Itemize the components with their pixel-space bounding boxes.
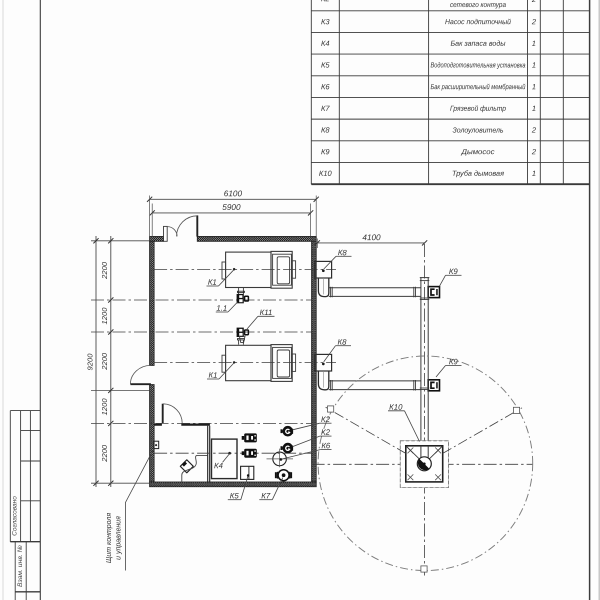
svg-text:сетевого контура: сетевого контура [450,0,506,9]
svg-text:К3: К3 [321,17,330,26]
svg-text:К9: К9 [321,147,330,156]
svg-text:1200: 1200 [100,307,109,325]
svg-text:К5: К5 [230,491,240,500]
svg-text:К6: К6 [321,82,330,91]
svg-text:К8: К8 [338,248,348,257]
svg-text:9200: 9200 [86,353,95,371]
svg-text:2: 2 [531,147,537,156]
svg-text:2: 2 [531,17,537,26]
svg-text:2: 2 [531,126,537,135]
svg-text:Бак запаса воды: Бак запаса воды [450,39,506,48]
svg-text:К9: К9 [449,357,459,366]
svg-text:К1: К1 [208,278,217,287]
svg-text:К10: К10 [319,169,333,178]
svg-text:1: 1 [532,104,536,113]
svg-text:1: 1 [532,169,536,178]
svg-text:К6: К6 [321,441,331,450]
svg-text:К8: К8 [321,126,330,135]
svg-text:5900: 5900 [222,203,241,212]
svg-text:К7: К7 [261,491,271,500]
svg-text:Щит контроля: Щит контроля [106,513,113,564]
svg-text:1200: 1200 [100,398,109,416]
svg-text:1: 1 [532,82,536,91]
svg-text:К9: К9 [449,267,459,276]
svg-text:2: 2 [531,0,537,4]
svg-text:К10: К10 [389,403,403,412]
svg-text:К2: К2 [321,0,330,3]
svg-text:К8: К8 [338,338,348,347]
svg-text:Грязевой фильтр: Грязевой фильтр [450,104,506,113]
svg-text:6100: 6100 [224,189,243,198]
svg-text:и управления: и управления [116,516,123,560]
svg-text:К7: К7 [321,104,330,113]
svg-text:1: 1 [532,61,536,70]
svg-text:Водоподготовительная установка: Водоподготовительная установка [430,60,525,69]
svg-text:4100: 4100 [362,233,381,242]
svg-text:2200: 2200 [100,261,109,280]
svg-text:К4: К4 [214,461,224,470]
svg-text:1.1: 1.1 [216,304,227,313]
svg-text:К4: К4 [321,39,330,48]
svg-text:К5: К5 [321,61,330,70]
svg-text:Взам. инв. №: Взам. инв. № [17,545,24,587]
svg-text:К1: К1 [209,371,218,380]
svg-text:Бак расширительный мембранный: Бак расширительный мембранный [430,82,525,91]
svg-text:К11: К11 [260,308,273,317]
svg-text:К2: К2 [321,415,331,424]
svg-text:2200: 2200 [100,352,109,371]
svg-text:1: 1 [532,39,536,48]
svg-text:Дымосос: Дымосос [460,147,494,156]
svg-text:2200: 2200 [100,444,109,463]
svg-text:Насос подпиточный: Насос подпиточный [445,17,511,26]
svg-text:Золоуловитель: Золоуловитель [452,125,503,134]
svg-text:Труба дымовая: Труба дымовая [452,169,504,178]
svg-text:К2: К2 [321,428,331,437]
svg-text:Согласовано: Согласовано [12,496,19,536]
